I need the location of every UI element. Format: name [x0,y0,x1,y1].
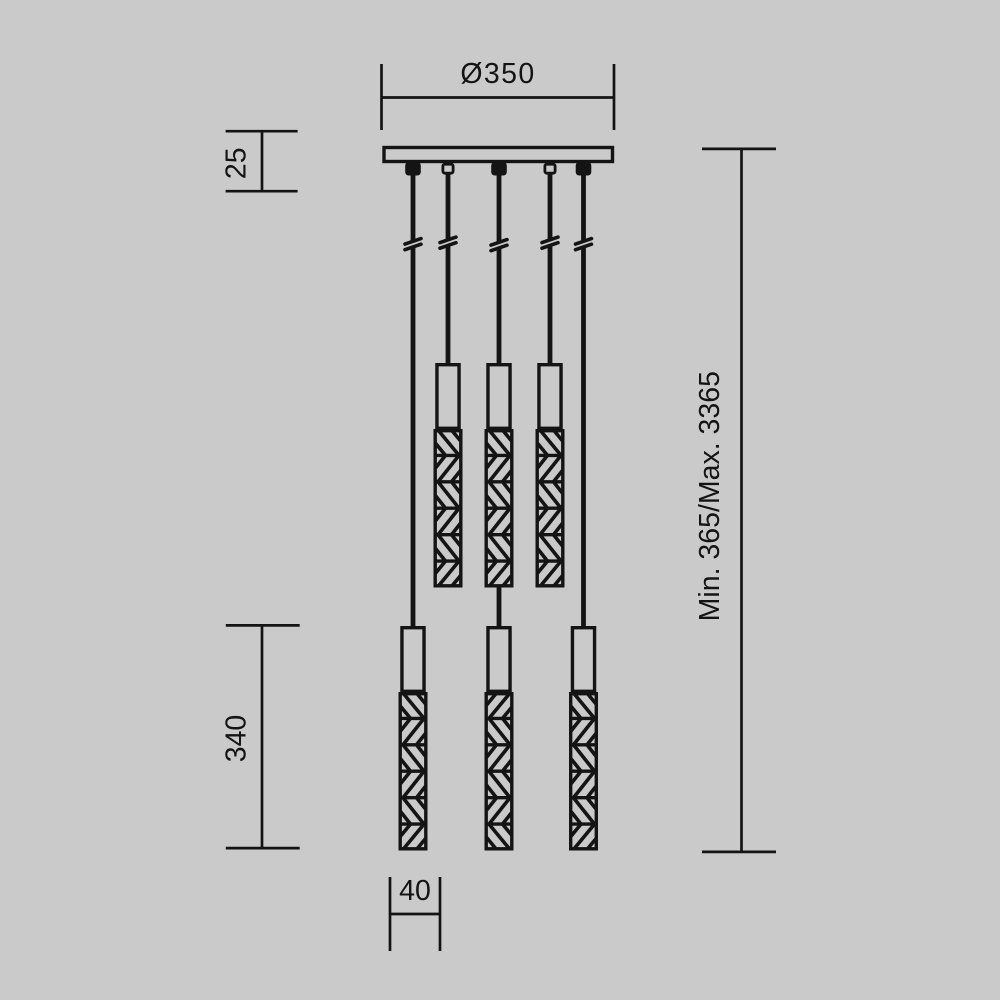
svg-text:340: 340 [221,715,253,763]
svg-text:25: 25 [221,147,253,179]
svg-text:Ø350: Ø350 [460,58,535,90]
svg-text:Min. 365/Max. 3365: Min. 365/Max. 3365 [694,371,726,621]
svg-text:40: 40 [399,875,431,907]
